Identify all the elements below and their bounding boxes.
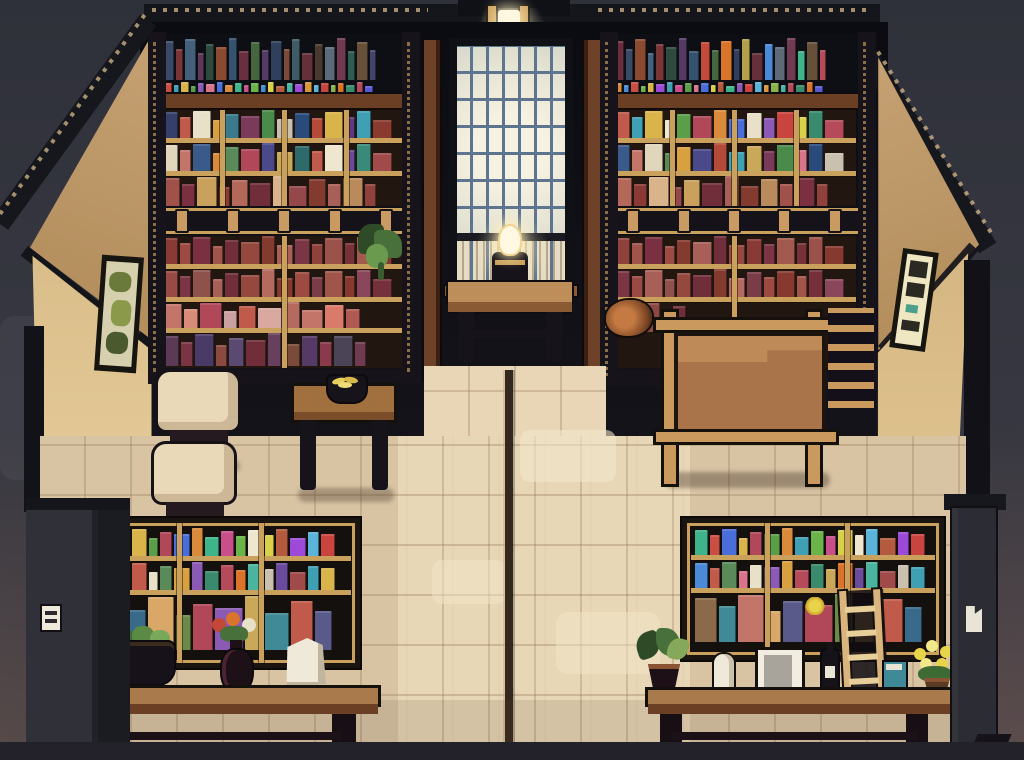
book-spine bbox=[216, 345, 227, 366]
vase-body bbox=[222, 650, 252, 692]
book-spine bbox=[747, 113, 762, 138]
book-spine bbox=[798, 51, 805, 80]
pillar-left-face bbox=[26, 510, 98, 756]
book-spine bbox=[777, 145, 795, 171]
book-spine bbox=[752, 53, 763, 80]
cabinet-right bbox=[682, 518, 944, 660]
book-spine bbox=[656, 44, 664, 80]
shelf-divider bbox=[765, 523, 770, 655]
book-spine bbox=[290, 572, 306, 590]
book-spine bbox=[262, 236, 275, 264]
book-spine bbox=[225, 85, 233, 92]
book-spine bbox=[229, 38, 237, 80]
book-spine bbox=[714, 236, 727, 264]
book-spine bbox=[225, 147, 239, 171]
book-spine bbox=[213, 279, 223, 297]
book-spine bbox=[160, 566, 172, 590]
book-spine bbox=[677, 273, 691, 297]
book-spine bbox=[321, 534, 335, 556]
book-spine bbox=[710, 568, 720, 588]
book-spine bbox=[750, 565, 762, 588]
book-spine bbox=[755, 82, 762, 92]
book-spine bbox=[645, 270, 663, 297]
bookshelf-left-top-spines bbox=[162, 38, 412, 80]
book-spine bbox=[796, 85, 805, 92]
book-spine bbox=[624, 85, 629, 92]
book-spine bbox=[325, 145, 343, 171]
window-flank-post-right bbox=[584, 40, 600, 380]
book-spine bbox=[312, 118, 323, 138]
flower-emblem bbox=[805, 597, 825, 615]
book-row bbox=[160, 143, 414, 171]
book-spine bbox=[180, 243, 191, 264]
right-poster-paper bbox=[895, 254, 933, 347]
book-spine bbox=[679, 38, 687, 80]
book-spine bbox=[225, 240, 239, 264]
pillar-left-side bbox=[98, 510, 130, 756]
book-spine bbox=[747, 146, 762, 171]
book-spine bbox=[251, 42, 260, 80]
bookshelf-left-side-right bbox=[402, 32, 420, 384]
book-spine bbox=[192, 528, 203, 556]
book-spine bbox=[855, 568, 864, 588]
left-picture-art-blob2 bbox=[110, 299, 132, 326]
book-spine bbox=[198, 53, 204, 80]
book-spine bbox=[225, 273, 239, 297]
book-spine bbox=[811, 564, 824, 588]
book-spine bbox=[695, 598, 717, 642]
right-poster-glyph2 bbox=[906, 282, 926, 298]
bottom-band bbox=[0, 742, 1024, 760]
book-spine bbox=[302, 310, 323, 328]
bookshelf-left-grid-upper bbox=[160, 110, 408, 206]
book-spine bbox=[149, 538, 158, 556]
railing-post bbox=[828, 209, 842, 233]
book-spine bbox=[666, 47, 677, 80]
book-spine bbox=[695, 530, 708, 555]
book-spine bbox=[314, 85, 319, 92]
plant-leaf bbox=[366, 244, 388, 268]
railing-post bbox=[226, 209, 240, 233]
right-poster-accent bbox=[905, 304, 918, 314]
book-spine bbox=[797, 243, 807, 264]
book-spine bbox=[781, 85, 786, 92]
book-spine bbox=[641, 86, 646, 92]
book-spine bbox=[795, 570, 809, 588]
book-spine bbox=[905, 607, 922, 642]
railing-post bbox=[677, 209, 691, 233]
book-spine bbox=[695, 563, 708, 588]
book-spine bbox=[677, 240, 691, 264]
window-glass-upper bbox=[457, 46, 565, 233]
book-spine bbox=[714, 143, 727, 171]
bottle bbox=[822, 650, 838, 692]
book-spine bbox=[295, 84, 303, 92]
book-spine bbox=[165, 41, 174, 80]
book-spine bbox=[206, 84, 215, 92]
book-spine bbox=[722, 529, 737, 555]
book-spine bbox=[665, 246, 675, 264]
book-spine bbox=[777, 112, 795, 138]
book-spine bbox=[357, 144, 371, 171]
right-poster-glyph1 bbox=[908, 260, 928, 278]
book-spine bbox=[667, 82, 673, 92]
book-spine bbox=[626, 49, 633, 80]
book-spine bbox=[365, 184, 376, 206]
book-spine bbox=[677, 114, 691, 138]
shelf-line bbox=[691, 588, 935, 593]
white-figurine bbox=[714, 654, 734, 692]
shelf-line bbox=[101, 590, 351, 595]
book-spine bbox=[809, 144, 823, 171]
book-spine bbox=[338, 83, 344, 92]
book-spine bbox=[777, 271, 795, 297]
book-spine bbox=[241, 116, 260, 138]
floor-worn-patch bbox=[520, 430, 616, 482]
bookshelf-right-top-spines bbox=[612, 38, 858, 80]
left-picture-art-blob1 bbox=[109, 271, 132, 292]
book-spine bbox=[710, 535, 720, 555]
pillar-left bbox=[26, 498, 130, 756]
book-spine bbox=[737, 83, 743, 92]
plant-pot bbox=[648, 664, 680, 692]
book-spine bbox=[295, 146, 310, 171]
fruit-bowl bbox=[328, 376, 366, 402]
book-spine bbox=[665, 279, 675, 297]
book-spine bbox=[373, 279, 392, 297]
book-spine bbox=[251, 83, 259, 92]
fruit-table-leg bbox=[300, 420, 316, 490]
stool-back bbox=[158, 372, 238, 430]
bookshelf-right-mid-band bbox=[608, 208, 860, 234]
card-inner bbox=[764, 655, 792, 687]
book-spine bbox=[747, 272, 762, 297]
book-spine bbox=[693, 242, 712, 264]
book-spine bbox=[239, 51, 249, 80]
book-spine bbox=[825, 279, 844, 297]
wall-ladder-slats bbox=[828, 308, 874, 408]
book-spine bbox=[807, 82, 813, 92]
floor-seam bbox=[505, 370, 513, 744]
book-spine bbox=[815, 86, 823, 92]
book-spine bbox=[357, 82, 363, 92]
book-spine bbox=[632, 276, 643, 297]
tag-mark bbox=[45, 619, 57, 623]
book-spine bbox=[677, 147, 691, 171]
book-spine bbox=[232, 180, 248, 206]
floor-aisle-upper bbox=[424, 366, 606, 440]
stool-seat bbox=[154, 444, 234, 502]
book-spine bbox=[648, 83, 654, 92]
book-spine bbox=[193, 237, 211, 264]
book-spine bbox=[182, 184, 195, 206]
bottle-neck bbox=[827, 642, 833, 652]
book-spine bbox=[308, 566, 319, 590]
book-spine bbox=[357, 42, 368, 80]
book-spine bbox=[911, 534, 925, 555]
book-spine bbox=[312, 151, 323, 171]
book-row bbox=[612, 269, 862, 297]
book-spine bbox=[250, 183, 271, 206]
bookshelf-right-header bbox=[608, 94, 860, 108]
left-picture-art-blob3 bbox=[105, 331, 128, 354]
book-spine bbox=[721, 41, 732, 80]
book-spine bbox=[632, 243, 643, 264]
book-spine bbox=[866, 529, 878, 555]
book-spine bbox=[764, 244, 775, 264]
book-spine bbox=[739, 538, 748, 555]
book-spine bbox=[174, 85, 179, 92]
book-spine bbox=[295, 239, 310, 264]
book-spine bbox=[771, 83, 779, 92]
framed-card bbox=[758, 650, 802, 692]
book-spine bbox=[325, 238, 343, 264]
book-spine bbox=[268, 333, 281, 366]
bookshelf-right-grid-upper bbox=[612, 110, 856, 206]
book-spine bbox=[764, 118, 775, 138]
book-spine bbox=[825, 246, 844, 264]
book-spine bbox=[365, 86, 373, 92]
tag-mark bbox=[45, 611, 57, 615]
book-spine bbox=[309, 179, 326, 206]
book-spine bbox=[160, 532, 172, 556]
book-spine bbox=[825, 153, 844, 171]
book-spine bbox=[675, 85, 683, 92]
book-spine bbox=[181, 342, 193, 366]
board-bottom-rail bbox=[656, 432, 836, 442]
lamp-gold-band bbox=[495, 260, 525, 265]
book-spine bbox=[825, 120, 844, 138]
shelf-line bbox=[691, 555, 935, 560]
window-table-crossbar bbox=[472, 330, 548, 338]
book-spine bbox=[782, 561, 793, 588]
book-spine bbox=[206, 44, 214, 80]
pillar-tag bbox=[42, 606, 60, 630]
book-pages bbox=[886, 664, 902, 670]
book-spine bbox=[866, 562, 878, 588]
book-row bbox=[612, 110, 862, 138]
book-row bbox=[160, 110, 414, 138]
book-spine bbox=[807, 42, 818, 80]
book-spine bbox=[224, 311, 237, 328]
book-spine bbox=[261, 85, 266, 92]
book-spine bbox=[742, 39, 750, 80]
book-spine bbox=[225, 114, 239, 138]
left-wall-picture bbox=[94, 255, 144, 374]
book-spine bbox=[246, 340, 266, 366]
board-top-rail bbox=[656, 320, 836, 330]
book-spine bbox=[193, 144, 211, 171]
fruit-table-shadow bbox=[298, 488, 394, 502]
book-spine bbox=[265, 535, 274, 556]
book-spine bbox=[820, 50, 826, 80]
book-spine bbox=[337, 38, 346, 80]
book-spine bbox=[236, 536, 246, 556]
book-spine bbox=[262, 110, 275, 138]
book-spine bbox=[765, 44, 773, 80]
book-spine bbox=[747, 239, 762, 264]
shelf-divider bbox=[344, 110, 349, 206]
book-spine bbox=[176, 49, 183, 80]
book-spine bbox=[373, 153, 392, 171]
book-spine bbox=[648, 53, 654, 80]
book-spine bbox=[193, 270, 211, 297]
book-spine bbox=[193, 111, 211, 138]
book-row bbox=[612, 176, 862, 206]
railing-post bbox=[328, 209, 342, 233]
window-table-leg bbox=[546, 312, 562, 362]
shelf-divider bbox=[220, 110, 225, 206]
book-spine bbox=[287, 83, 293, 92]
book-spine bbox=[745, 84, 753, 92]
book-spine bbox=[295, 113, 310, 138]
table-lamp-body bbox=[492, 252, 528, 284]
shelf-plant bbox=[352, 222, 408, 280]
book-spine bbox=[321, 83, 329, 92]
book-spine bbox=[132, 563, 147, 590]
book-spine bbox=[898, 565, 909, 588]
book-spine bbox=[809, 270, 823, 297]
book-spine bbox=[811, 531, 824, 555]
book-spine bbox=[320, 342, 332, 366]
book-row bbox=[160, 302, 414, 328]
book-spine bbox=[312, 244, 323, 264]
book-spine bbox=[276, 529, 288, 556]
book-spine bbox=[221, 531, 234, 556]
book-row bbox=[612, 236, 862, 264]
book-spine bbox=[357, 111, 371, 138]
book-spine bbox=[761, 179, 778, 206]
left-picture-canvas bbox=[99, 261, 138, 367]
shelf-divider bbox=[732, 110, 737, 206]
book-spine bbox=[712, 50, 719, 80]
book-spine bbox=[258, 308, 282, 328]
railing-post bbox=[175, 209, 189, 233]
book-spine bbox=[132, 529, 147, 556]
book-spine bbox=[295, 272, 310, 297]
book-spine bbox=[181, 82, 189, 92]
bookshelf-left-color-strip bbox=[162, 82, 412, 92]
book-spine bbox=[276, 86, 285, 92]
book-spine bbox=[302, 336, 318, 366]
book-spine bbox=[192, 562, 203, 590]
counter-right-shelfbar bbox=[672, 732, 918, 740]
shelf-divider bbox=[282, 110, 287, 206]
bottle-label bbox=[825, 666, 835, 678]
filigree bbox=[407, 42, 410, 372]
book-spine bbox=[235, 83, 242, 92]
book-spine bbox=[185, 39, 196, 80]
book-spine bbox=[826, 569, 836, 588]
floor-worn-patch bbox=[432, 560, 506, 604]
shelf-line bbox=[101, 556, 351, 561]
roof-stipple-right bbox=[598, 8, 868, 12]
book-spine bbox=[308, 532, 319, 556]
book-spine bbox=[693, 275, 712, 297]
flower-vase bbox=[210, 612, 266, 696]
book-spine bbox=[764, 85, 769, 92]
pillar-right-face bbox=[952, 508, 996, 760]
book-spine bbox=[191, 86, 196, 92]
plant-vine bbox=[378, 262, 384, 280]
shelf-divider bbox=[670, 110, 675, 206]
window-flank-post-left bbox=[424, 40, 440, 380]
book-spine bbox=[880, 538, 896, 555]
book-spine bbox=[370, 50, 376, 80]
book-spine bbox=[795, 537, 809, 555]
book-spine bbox=[764, 277, 775, 297]
book-spine bbox=[711, 85, 716, 92]
book-spine bbox=[689, 51, 699, 80]
shelf-divider bbox=[794, 110, 799, 206]
book-spine bbox=[741, 186, 759, 206]
book-spine bbox=[714, 110, 727, 138]
book-spine bbox=[290, 538, 306, 556]
book-spine bbox=[693, 116, 712, 138]
counter-right-top bbox=[648, 690, 950, 704]
book-spine bbox=[325, 112, 343, 138]
book-spine bbox=[645, 111, 663, 138]
book-spine bbox=[734, 49, 740, 80]
book-spine bbox=[656, 84, 665, 92]
banana bbox=[338, 382, 352, 388]
book-spine bbox=[855, 535, 864, 555]
book-spine bbox=[685, 83, 692, 92]
book-spine bbox=[216, 47, 227, 80]
counter-right-front bbox=[648, 704, 950, 714]
copper-kettle bbox=[606, 300, 652, 336]
shelf-divider bbox=[282, 236, 287, 368]
flower bbox=[226, 612, 240, 626]
book-spine bbox=[693, 149, 712, 171]
book-spine bbox=[198, 83, 204, 92]
book-spine bbox=[292, 39, 300, 80]
book-spine bbox=[718, 82, 724, 92]
book-spine bbox=[325, 271, 343, 297]
shelf-divider bbox=[177, 523, 182, 663]
book-row bbox=[692, 528, 930, 555]
book-spine bbox=[782, 528, 793, 555]
book-spine bbox=[355, 342, 366, 366]
book-spine bbox=[276, 563, 288, 590]
book-spine bbox=[373, 120, 392, 138]
pillar-right bbox=[944, 494, 1006, 760]
book-spine bbox=[797, 276, 807, 297]
book-spine bbox=[302, 53, 313, 80]
book-spine bbox=[719, 606, 736, 642]
book-row bbox=[692, 561, 930, 588]
book-spine bbox=[305, 82, 312, 92]
book-spine bbox=[217, 82, 223, 92]
book-spine bbox=[315, 44, 323, 80]
railing-post bbox=[727, 209, 741, 233]
book-spine bbox=[165, 83, 172, 92]
potted-plant-left bbox=[634, 630, 692, 694]
book-row bbox=[612, 143, 862, 171]
book-spine bbox=[328, 184, 341, 206]
right-poster-glyph3 bbox=[901, 320, 920, 332]
book-row bbox=[160, 333, 414, 366]
game-viewport[interactable] bbox=[0, 0, 1024, 760]
book-spine bbox=[750, 532, 762, 555]
book-spine bbox=[788, 83, 794, 92]
book-spine bbox=[777, 238, 795, 264]
railing-post bbox=[777, 209, 791, 233]
book-spine bbox=[149, 572, 158, 590]
bookshelf-right-color-strip bbox=[612, 82, 858, 92]
counter-left-shelfbar bbox=[100, 732, 342, 740]
book-spine bbox=[714, 269, 727, 297]
